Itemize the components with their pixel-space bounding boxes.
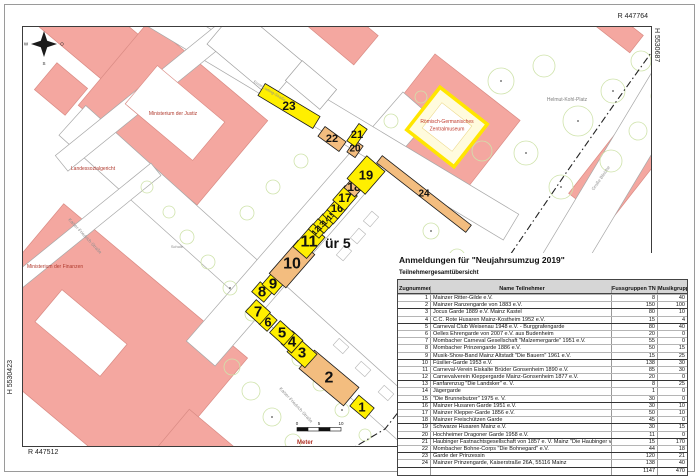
table-cell: 80 bbox=[612, 309, 658, 315]
site-plan-page: { "frame": { "coord_top_right": "R 44776… bbox=[0, 0, 699, 476]
parade-position-number: 1 bbox=[358, 400, 365, 415]
table-cell: Mainzer Prinzengarde, Kaiserstraße 26A, … bbox=[431, 460, 612, 466]
table-cell: 1 bbox=[398, 295, 431, 301]
table-cell: Haubinger Fastnachtsgesellschaft von 185… bbox=[431, 439, 612, 445]
table-cell: 30 bbox=[612, 396, 658, 402]
table-cell: Carnevalverein Kleppergarde Mainz-Gonsen… bbox=[431, 374, 612, 380]
table-row: 17Mainzer Klepper-Garde 1856 e.V.5010 bbox=[398, 409, 687, 416]
registrations-table-panel: Anmeldungen für "Neujahrsumzug 2019" Tei… bbox=[397, 253, 688, 476]
table-cell: 15 bbox=[398, 396, 431, 402]
table-cell: 11 bbox=[612, 432, 658, 438]
table-cell: Mombacher Bohne-Corps "Die Bohnegard" e.… bbox=[431, 446, 612, 452]
table-cell: 24 bbox=[398, 460, 431, 466]
scalebar-tick-10: 10 bbox=[338, 421, 344, 426]
table-row: 21Haubinger Fastnachtsgesellschaft von 1… bbox=[398, 438, 687, 445]
table-row: 19Schwarze Husaren Mainz e.V.3015 bbox=[398, 423, 687, 430]
table-cell: Hochheimer Dragoner Garde 1958 e.V. bbox=[431, 432, 612, 438]
table-row: 11Carneval-Verein Eiskalte Brüder Gonsen… bbox=[398, 366, 687, 373]
table-cell: 14 bbox=[398, 388, 431, 394]
scale-bar bbox=[297, 428, 341, 432]
table-cell: Mombacher Prinzengarde 1886 e.V. bbox=[431, 345, 612, 351]
compass-label-o: O bbox=[60, 42, 64, 47]
table-cell: 0 bbox=[658, 338, 687, 344]
table-cell: 30 bbox=[658, 367, 687, 373]
table-cell: 15 bbox=[658, 424, 687, 430]
coordinate-label-top-right: R 447764 bbox=[578, 13, 648, 20]
parade-position-number: 24 bbox=[418, 189, 430, 200]
table-cell: 10 bbox=[658, 403, 687, 409]
coordinate-label-bottom-left: R 447512 bbox=[28, 449, 58, 456]
parade-position-number: 10 bbox=[283, 256, 301, 273]
table-row: 10Füsilier-Garde 1953 e.V.13830 bbox=[398, 359, 687, 366]
table-cell: 0 bbox=[658, 432, 687, 438]
table-cell: Carneval-Verein Eiskalte Brüder Gonsenhe… bbox=[431, 367, 612, 373]
table-cell: 8 bbox=[612, 295, 658, 301]
scalebar-tick-5: 5 bbox=[318, 421, 321, 426]
table-cell bbox=[431, 468, 612, 475]
building-label-zentralmuseum-line2: Zentralmuseum bbox=[430, 127, 465, 133]
table-row: 9Musik-Show-Band Mainz Altstadt "Die Bau… bbox=[398, 352, 687, 359]
table-row: 5Carneval Club Weisenau 1948 e.V. - Burg… bbox=[398, 323, 687, 330]
table-cell: 15 bbox=[612, 439, 658, 445]
table-cell: 11 bbox=[398, 367, 431, 373]
coordinate-label-right: H 5530687 bbox=[653, 28, 660, 62]
table-cell: 0 bbox=[658, 374, 687, 380]
table-cell: 21 bbox=[398, 439, 431, 445]
column-header-name: Name Teilnehmer bbox=[431, 286, 612, 293]
coordinate-label-left: H 5530423 bbox=[7, 360, 14, 394]
table-cell: Mainzer Husaren Garde 1951 e.V. bbox=[431, 403, 612, 409]
table-cell: 0 bbox=[658, 388, 687, 394]
table-cell: 150 bbox=[612, 302, 658, 308]
table-cell: 18 bbox=[658, 446, 687, 452]
table-cell: 7 bbox=[398, 338, 431, 344]
table-cell: 30 bbox=[612, 403, 658, 409]
table-cell: 4 bbox=[658, 317, 687, 323]
table-cell: 13 bbox=[398, 381, 431, 387]
table-cell: Jägergarde bbox=[431, 388, 612, 394]
column-header-musikgruppen: Musikgruppen TN bbox=[658, 286, 687, 293]
structure bbox=[363, 211, 378, 227]
table-cell: 85 bbox=[612, 367, 658, 373]
table-cell: 138 bbox=[612, 360, 658, 366]
table-cell: 40 bbox=[658, 460, 687, 466]
table-cell: 22 bbox=[398, 446, 431, 452]
table-cell: 30 bbox=[612, 424, 658, 430]
table-cell: 25 bbox=[658, 353, 687, 359]
table-cell: 2 bbox=[398, 302, 431, 308]
table-cell: 12 bbox=[398, 374, 431, 380]
table-cell: 15 bbox=[612, 317, 658, 323]
total-fussgruppen: 1147 bbox=[612, 468, 658, 475]
table-cell: 21 bbox=[658, 453, 687, 459]
table-cell: 3 bbox=[398, 309, 431, 315]
scalebar-unit: Meter bbox=[297, 440, 314, 446]
table-row: 12Carnevalverein Kleppergarde Mainz-Gons… bbox=[398, 373, 687, 380]
table-cell: 25 bbox=[658, 381, 687, 387]
table-cell bbox=[398, 468, 431, 475]
table-row: 20Hochheimer Dragoner Garde 1958 e.V.110 bbox=[398, 431, 687, 438]
parade-position-number: 3 bbox=[298, 345, 306, 362]
table-cell: 19 bbox=[398, 424, 431, 430]
table-row: 13Fanfarenzug "Die Landsker" e. V.825 bbox=[398, 380, 687, 387]
table-cell: 15 bbox=[658, 345, 687, 351]
table-cell: Carneval Club Weisenau 1948 e.V. - Burgg… bbox=[431, 324, 612, 330]
table-cell: Füsilier-Garde 1953 e.V. bbox=[431, 360, 612, 366]
table-cell: C.C. Rote Husaren Mainz-Kostheim 1952 e.… bbox=[431, 317, 612, 323]
parade-position-number: 5 bbox=[278, 325, 286, 342]
table-cell: Mombacher Carneval Gesellschaft "Malzeme… bbox=[431, 338, 612, 344]
building-label-zentralmuseum-line1: Römisch-Germanisches bbox=[420, 119, 474, 125]
parade-position-number: 22 bbox=[326, 133, 338, 145]
compass-label-w: W bbox=[24, 42, 29, 47]
table-row: 16Mainzer Husaren Garde 1951 e.V.3010 bbox=[398, 402, 687, 409]
table-body: 1Mainzer Ritter-Gilde e.V.8402Mainzer Ra… bbox=[398, 294, 687, 467]
parade-position-number: 21 bbox=[351, 129, 363, 141]
scalebar-tick-0: 0 bbox=[296, 421, 299, 426]
participants-table: Zugnummer Name Teilnehmer Fussgruppen TN… bbox=[397, 279, 688, 476]
table-cell: 45 bbox=[612, 417, 658, 423]
table-cell: Mainzer Ranzengarde von 1883 e.V. bbox=[431, 302, 612, 308]
table-cell: 0 bbox=[658, 396, 687, 402]
table-row: 23Garde der Prinzessin12021 bbox=[398, 452, 687, 459]
table-cell: 0 bbox=[658, 331, 687, 337]
table-row: 7Mombacher Carneval Gesellschaft "Malzem… bbox=[398, 337, 687, 344]
table-cell: Mainzer Freischützen Garde bbox=[431, 417, 612, 423]
table-cell: Mainzer Klepper-Garde 1856 e.V. bbox=[431, 410, 612, 416]
table-cell: 17 bbox=[398, 410, 431, 416]
table-cell: 20 bbox=[398, 432, 431, 438]
compass-label-s: S bbox=[42, 61, 45, 66]
total-musikgruppen: 470 bbox=[658, 468, 687, 475]
table-row: 2Mainzer Ranzengarde von 1883 e.V.150100 bbox=[398, 301, 687, 308]
compass-label-n: N bbox=[42, 27, 45, 28]
street-label-kaiser-friedrich-strasse-2: Kaiser-Friedrich-Straße bbox=[278, 386, 314, 424]
table-cell: 8 bbox=[398, 345, 431, 351]
table-row: 4C.C. Rote Husaren Mainz-Kostheim 1952 e… bbox=[398, 316, 687, 323]
table-row: 6Oelles Ehrengarde von 2007 e.V. aus Bud… bbox=[398, 330, 687, 337]
table-cell: 23 bbox=[398, 453, 431, 459]
table-cell: 170 bbox=[658, 439, 687, 445]
table-cell: 50 bbox=[612, 345, 658, 351]
table-cell: 10 bbox=[658, 410, 687, 416]
table-row: 18Mainzer Freischützen Garde450 bbox=[398, 416, 687, 423]
table-cell: Fanfarenzug "Die Landsker" e. V. bbox=[431, 381, 612, 387]
table-cell: 6 bbox=[398, 331, 431, 337]
table-cell: 18 bbox=[398, 417, 431, 423]
table-row: 14Jägergarde10 bbox=[398, 387, 687, 394]
building bbox=[34, 63, 87, 116]
table-cell: 40 bbox=[658, 324, 687, 330]
table-cell: 55 bbox=[612, 338, 658, 344]
table-cell: Garde der Prinzessin bbox=[431, 453, 612, 459]
table-cell: 9 bbox=[398, 353, 431, 359]
building bbox=[308, 27, 378, 65]
table-cell: 50 bbox=[612, 410, 658, 416]
table-cell: Musik-Show-Band Mainz Altstadt "Die Baue… bbox=[431, 353, 612, 359]
table-cell: 16 bbox=[398, 403, 431, 409]
table-row: 24Mainzer Prinzengarde, Kaiserstraße 26A… bbox=[398, 459, 687, 466]
building-label-landessozialgericht: Landessozialgericht bbox=[71, 166, 116, 172]
building-label-ministerium-der-justiz: Ministerium der Justiz bbox=[149, 111, 198, 117]
table-cell: 4 bbox=[398, 317, 431, 323]
table-cell: 80 bbox=[612, 324, 658, 330]
building bbox=[571, 27, 644, 53]
table-cell: 30 bbox=[658, 360, 687, 366]
table-cell: Jocus Garde 1889 e.V. Mainz Kastel bbox=[431, 309, 612, 315]
parade-position-number: 19 bbox=[359, 168, 373, 183]
map-annotation-ur-5: ür 5 bbox=[325, 235, 351, 251]
building-label-schule: Schule bbox=[171, 244, 184, 249]
table-cell: Schwarze Husaren Mainz e.V. bbox=[431, 424, 612, 430]
parade-position-number: 2 bbox=[325, 370, 334, 387]
table-cell: 10 bbox=[658, 309, 687, 315]
table-cell: Oelles Ehrengarde von 2007 e.V. aus Bude… bbox=[431, 331, 612, 337]
table-row: 15"Die Brunnebutzer" 1975 e. V.300 bbox=[398, 395, 687, 402]
table-cell: 20 bbox=[612, 374, 658, 380]
table-cell: 120 bbox=[612, 453, 658, 459]
structure bbox=[350, 228, 365, 244]
table-subtitle: Teilnehmergesamtübersicht bbox=[397, 268, 688, 279]
table-totals-row: 1147 470 bbox=[398, 467, 687, 475]
table-row: 8Mombacher Prinzengarde 1886 e.V.5015 bbox=[398, 344, 687, 351]
table-cell: 10 bbox=[398, 360, 431, 366]
table-cell: 40 bbox=[658, 295, 687, 301]
place-label-helmut-kohl-platz: Helmut-Kohl-Platz bbox=[547, 97, 588, 103]
table-cell: 138 bbox=[612, 460, 658, 466]
table-cell: 5 bbox=[398, 324, 431, 330]
table-row: 22Mombacher Bohne-Corps "Die Bohnegard" … bbox=[398, 445, 687, 452]
table-cell: 15 bbox=[612, 353, 658, 359]
table-cell: "Die Brunnebutzer" 1975 e. V. bbox=[431, 396, 612, 402]
table-header-row: Zugnummer Name Teilnehmer Fussgruppen TN… bbox=[398, 280, 687, 294]
table-cell: 0 bbox=[658, 417, 687, 423]
column-header-fussgruppen: Fussgruppen TN bbox=[612, 286, 658, 293]
table-row: 1Mainzer Ritter-Gilde e.V.840 bbox=[398, 294, 687, 301]
table-row: 3Jocus Garde 1889 e.V. Mainz Kastel8010 bbox=[398, 308, 687, 315]
table-cell: Mainzer Ritter-Gilde e.V. bbox=[431, 295, 612, 301]
table-cell: 44 bbox=[612, 446, 658, 452]
table-cell: 100 bbox=[658, 302, 687, 308]
table-cell: 8 bbox=[612, 381, 658, 387]
parade-position-number: 7 bbox=[254, 304, 262, 321]
table-cell: 20 bbox=[612, 331, 658, 337]
building-label-ministerium-der-finanzen: Ministerium der Finanzen bbox=[27, 264, 83, 270]
table-cell: 1 bbox=[612, 388, 658, 394]
table-title: Anmeldungen für "Neujahrsumzug 2019" bbox=[397, 253, 688, 268]
column-header-zugnummer: Zugnummer bbox=[398, 286, 431, 293]
